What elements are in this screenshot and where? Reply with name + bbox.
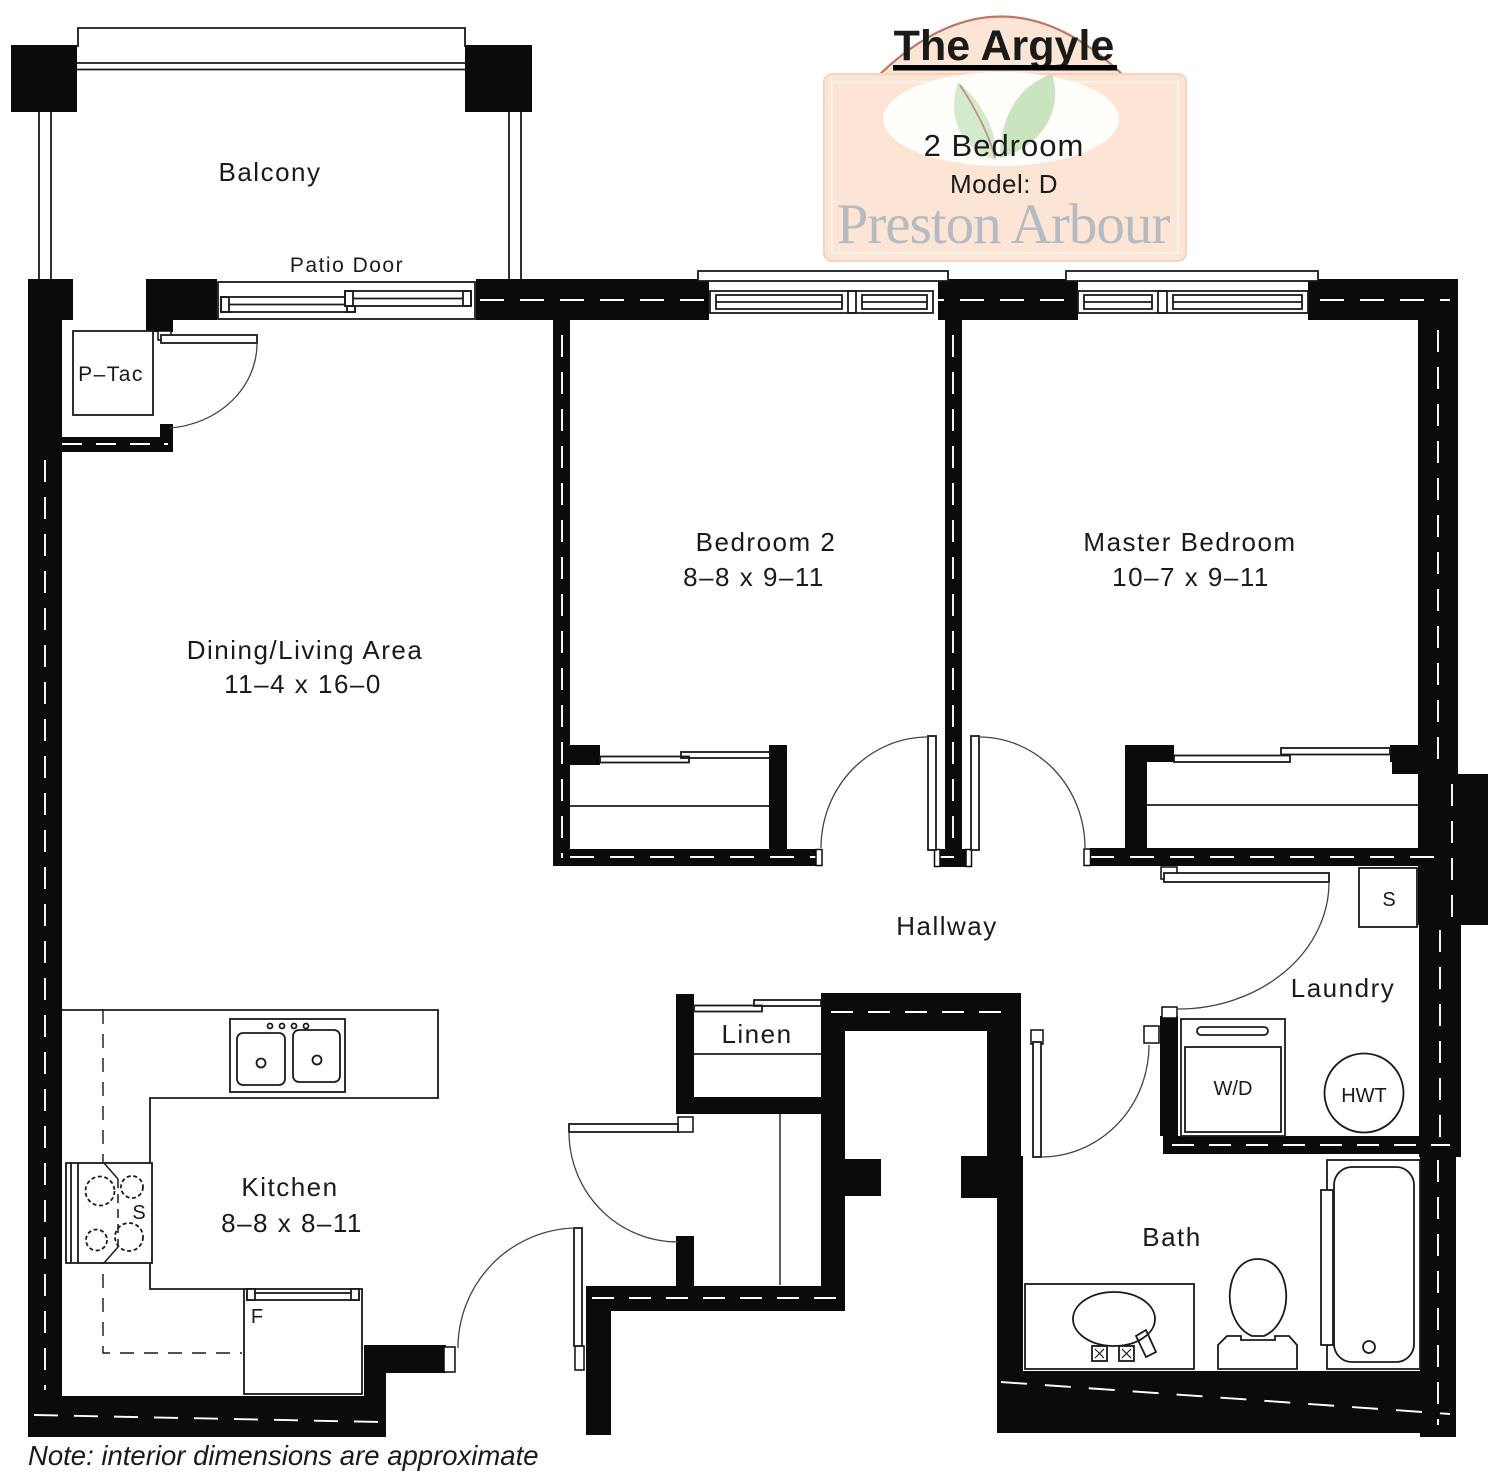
svg-text:10–7 x 9–11: 10–7 x 9–11 bbox=[1112, 562, 1270, 592]
svg-text:Bath: Bath bbox=[1142, 1222, 1202, 1252]
svg-text:The Argyle: The Argyle bbox=[894, 22, 1115, 70]
svg-text:Hallway: Hallway bbox=[896, 911, 998, 941]
svg-text:S: S bbox=[1382, 889, 1395, 911]
svg-text:Bedroom 2: Bedroom 2 bbox=[696, 527, 837, 557]
svg-text:2 Bedroom: 2 Bedroom bbox=[924, 128, 1085, 163]
svg-text:W/D: W/D bbox=[1214, 1078, 1253, 1100]
svg-text:8–8 x 9–11: 8–8 x 9–11 bbox=[683, 562, 825, 592]
svg-text:11–4 x 16–0: 11–4 x 16–0 bbox=[224, 669, 382, 699]
svg-text:Dining/Living Area: Dining/Living Area bbox=[187, 635, 424, 665]
svg-text:Kitchen: Kitchen bbox=[241, 1172, 338, 1202]
svg-text:Preston Arbour: Preston Arbour bbox=[837, 193, 1171, 256]
svg-text:F: F bbox=[251, 1306, 263, 1328]
svg-text:Balcony: Balcony bbox=[219, 157, 322, 187]
svg-text:HWT: HWT bbox=[1341, 1085, 1387, 1107]
svg-text:Note: interior dimensions are: Note: interior dimensions are approximat… bbox=[28, 1440, 539, 1471]
svg-text:Patio Door: Patio Door bbox=[290, 254, 404, 277]
svg-text:S: S bbox=[132, 1202, 145, 1224]
svg-text:P–Tac: P–Tac bbox=[78, 363, 144, 386]
svg-text:Laundry: Laundry bbox=[1291, 973, 1395, 1003]
svg-text:8–8 x 8–11: 8–8 x 8–11 bbox=[221, 1208, 363, 1238]
svg-text:Model: D: Model: D bbox=[950, 169, 1058, 199]
svg-text:Master Bedroom: Master Bedroom bbox=[1083, 527, 1296, 557]
svg-text:Linen: Linen bbox=[721, 1019, 792, 1049]
